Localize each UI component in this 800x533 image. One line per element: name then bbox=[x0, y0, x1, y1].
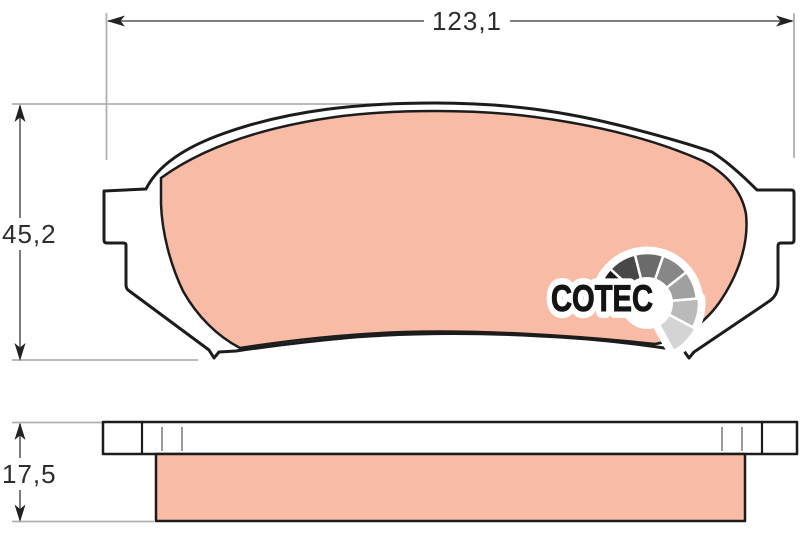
dimension-width: 123,1 bbox=[107, 6, 794, 36]
dimension-thickness-label: 17,5 bbox=[2, 459, 57, 489]
dimension-width-label: 123,1 bbox=[432, 6, 502, 36]
brake-pad-diagram: COTEC COTEC 123,1 45,2 17,5 bbox=[0, 0, 800, 533]
dimension-thickness: 17,5 bbox=[2, 423, 57, 523]
side-friction-material bbox=[156, 454, 745, 521]
dimension-height-label: 45,2 bbox=[2, 219, 57, 249]
logo-text: COTEC bbox=[551, 278, 653, 319]
side-backing-plate bbox=[103, 422, 797, 454]
side-view bbox=[103, 422, 797, 521]
dimension-height: 45,2 bbox=[2, 104, 57, 361]
